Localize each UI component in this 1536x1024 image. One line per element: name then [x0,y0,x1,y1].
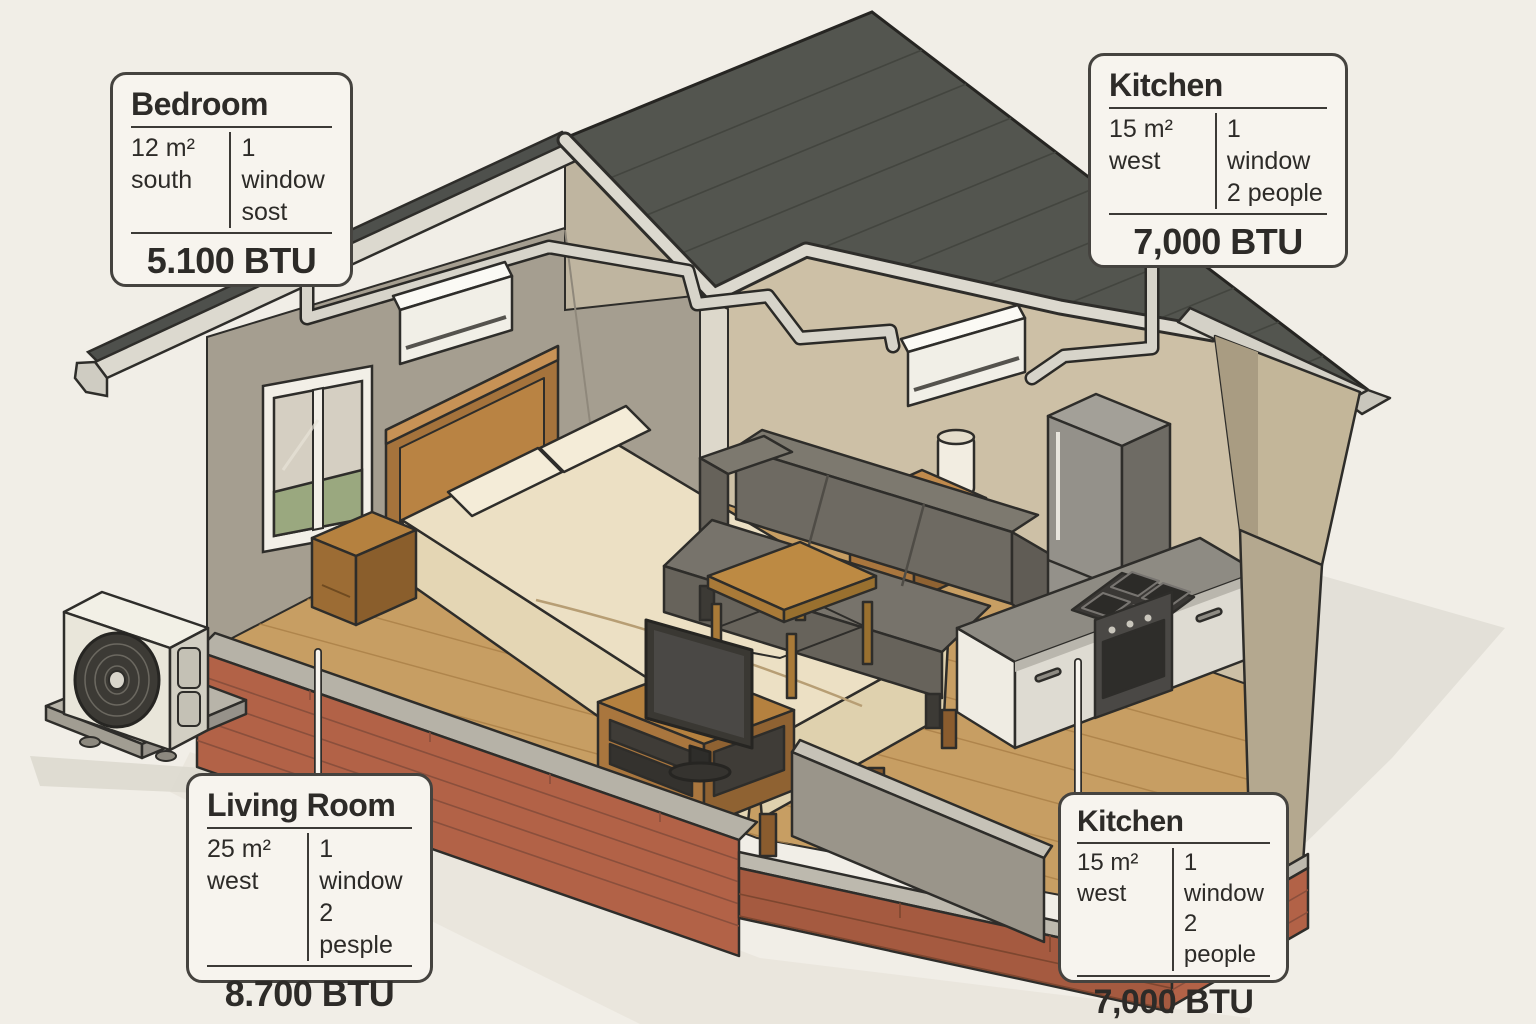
room-stats: 15 m² west 1 window 2 people [1109,113,1327,209]
divider [1077,842,1270,844]
room-title: Bedroom [131,87,332,122]
room-occupants: sost [241,196,332,228]
divider [307,833,309,961]
room-windows: 1 window [1227,113,1327,177]
room-label-kitchen-bottom: Kitchen 15 m² west 1 window 2 people 7,0… [1058,792,1289,983]
room-windows: 1 window [1184,848,1270,909]
room-windows: 1 window [319,833,412,897]
room-occupants: 2 people [1184,909,1270,970]
divider [229,132,231,228]
room-orientation: west [1077,879,1162,910]
room-occupants: 2 people [1227,177,1327,209]
room-label-bedroom: Bedroom 12 m² south 1 window sost 5.100 … [110,72,353,287]
room-label-living-room: Living Room 25 m² west 1 window 2 pesple… [186,773,433,983]
divider [1077,975,1270,977]
room-area: 25 m² [207,833,297,865]
btu-value: 5.100 BTU [131,238,332,282]
room-orientation: west [207,865,297,897]
divider [207,827,412,829]
room-windows: 1 window [241,132,332,196]
divider [1172,848,1174,971]
divider [1109,213,1327,215]
room-orientation: south [131,164,219,196]
room-area: 12 m² [131,132,219,164]
btu-value: 7,000 BTU [1077,981,1270,1022]
room-area: 15 m² [1109,113,1205,145]
room-stats: 15 m² west 1 window 2 people [1077,848,1270,971]
divider [131,126,332,128]
room-title: Kitchen [1109,68,1327,103]
btu-value: 7,000 BTU [1109,219,1327,263]
divider [131,232,332,234]
room-label-kitchen-top: Kitchen 15 m² west 1 window 2 people 7,0… [1088,53,1348,268]
room-title: Living Room [207,788,412,823]
room-title: Kitchen [1077,805,1270,838]
btu-value: 8.700 BTU [207,971,412,1015]
divider [207,965,412,967]
divider [1215,113,1217,209]
room-stats: 12 m² south 1 window sost [131,132,332,228]
divider [1109,107,1327,109]
room-area: 15 m² [1077,848,1162,879]
room-orientation: west [1109,145,1205,177]
room-stats: 25 m² west 1 window 2 pesple [207,833,412,961]
room-occupants: 2 pesple [319,897,412,961]
